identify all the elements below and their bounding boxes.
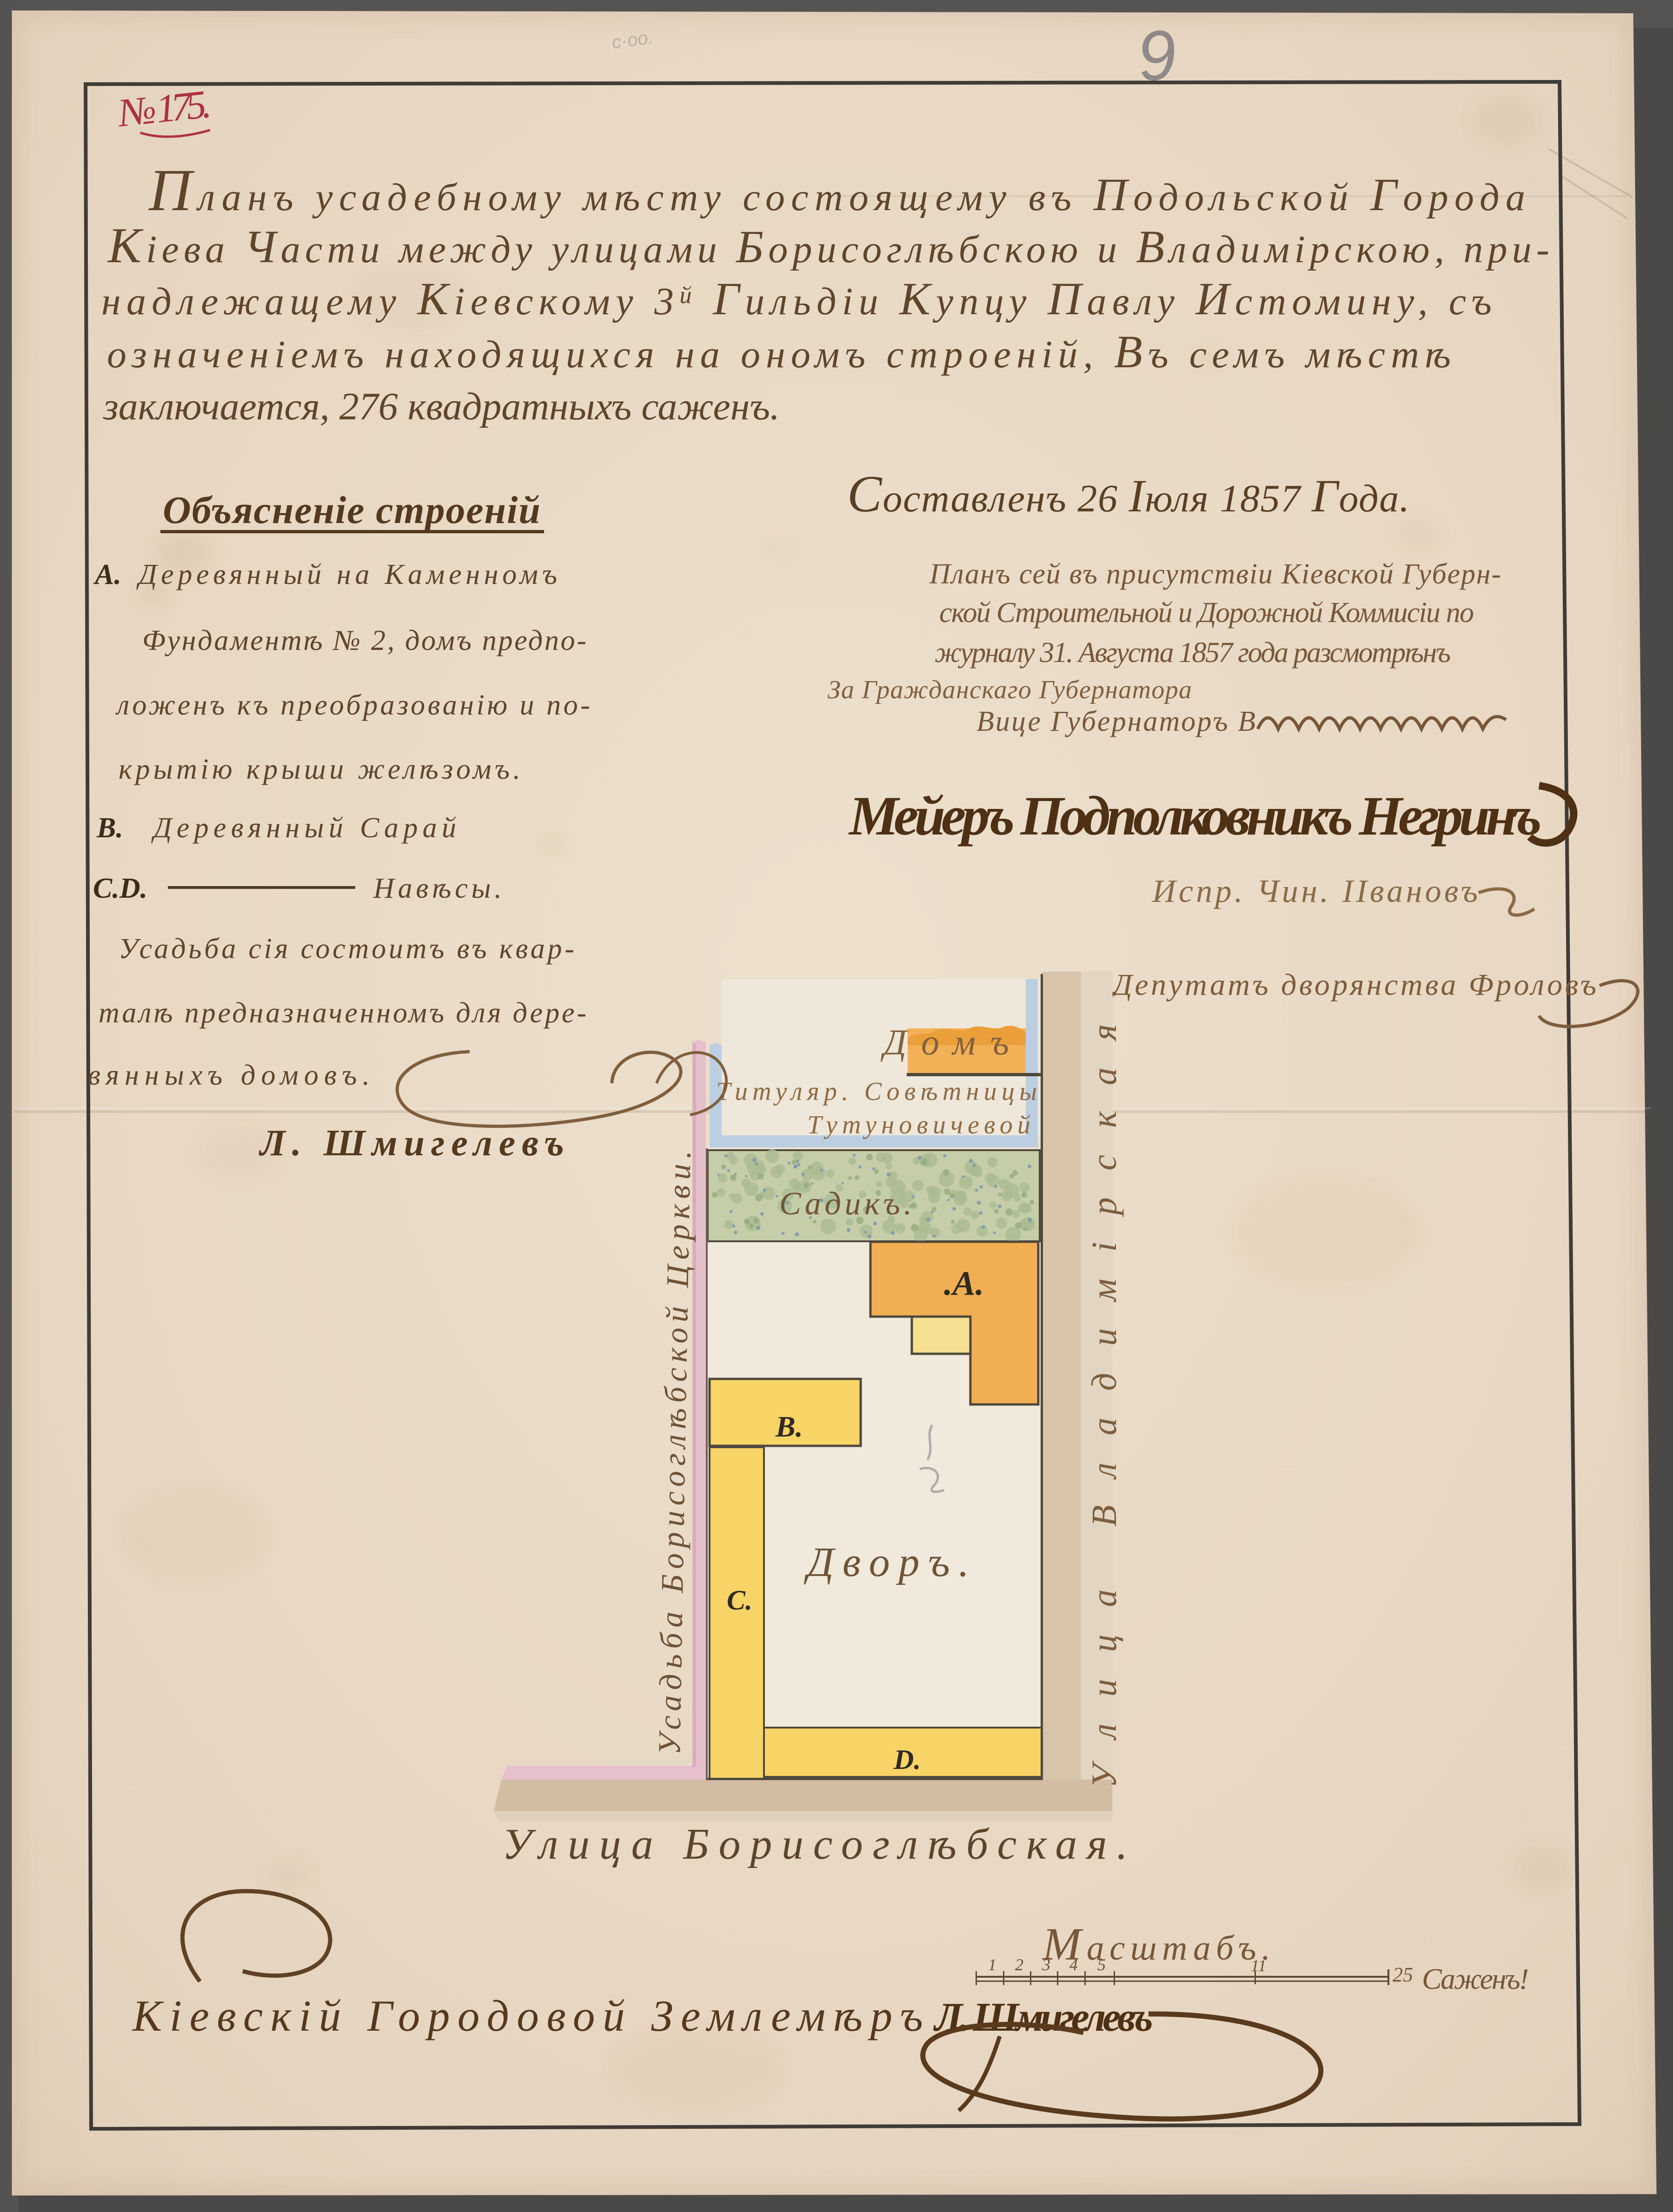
svg-text:Мейеръ Подполковникъ Негринъ: Мейеръ Подполковникъ Негринъ bbox=[848, 785, 1542, 847]
svg-text:Саженъ!: Саженъ! bbox=[1422, 1962, 1529, 1995]
svg-text:Фундаментѣ № 2, домъ предпо-: Фундаментѣ № 2, домъ предпо- bbox=[142, 625, 586, 656]
svg-text:ской Строительной и Дорожной: ской Строительной и Дорожной Коммисіи по bbox=[939, 597, 1474, 629]
svg-text:Садикъ.: Садикъ. bbox=[779, 1186, 912, 1222]
svg-text:крытію крыши желѣзомъ.: крытію крыши желѣзомъ. bbox=[119, 754, 520, 785]
svg-text:Испр. Чин. IІвановъ: Испр. Чин. IІвановъ bbox=[1152, 874, 1478, 909]
svg-text:25: 25 bbox=[1393, 1963, 1413, 1986]
svg-text:Дворъ.: Дворъ. bbox=[803, 1539, 969, 1585]
svg-text:В.: В. bbox=[96, 812, 123, 844]
svg-text:9: 9 bbox=[1134, 14, 1181, 96]
svg-text:надлежащему Кіевскому 3й Гил: надлежащему Кіевскому 3й Гильдіи Купцу П… bbox=[101, 273, 1492, 325]
svg-text:3: 3 bbox=[1042, 1955, 1050, 1974]
svg-text:заключается, 276 квадратныхъ: заключается, 276 квадратныхъ саженъ. bbox=[102, 385, 780, 428]
svg-text:1: 1 bbox=[988, 1955, 996, 1974]
svg-text:4: 4 bbox=[1069, 1955, 1078, 1974]
svg-text:11: 11 bbox=[1251, 1956, 1266, 1975]
svg-text:Вице Губернаторъ В: Вице Губернаторъ В bbox=[976, 706, 1255, 737]
svg-text:2: 2 bbox=[1015, 1955, 1023, 1974]
svg-text:Навѣсы.: Навѣсы. bbox=[373, 873, 502, 904]
svg-text:Титуляр. Совѣтницы: Титуляр. Совѣтницы bbox=[716, 1077, 1037, 1106]
svg-text:5: 5 bbox=[1097, 1955, 1106, 1974]
svg-text:За Гражданскаго Губернатора: За Гражданскаго Губернатора bbox=[828, 676, 1192, 704]
svg-text:С.: С. bbox=[727, 1585, 752, 1616]
svg-text:Кіевскій Городовой Землемѣръ: Кіевскій Городовой Землемѣръ bbox=[132, 1991, 923, 2040]
svg-text:Планъ сей въ присутствіи Кі: Планъ сей въ присутствіи Кіевской Губерн… bbox=[929, 558, 1501, 590]
svg-text:журналу 31. Августа 1857 го: журналу 31. Августа 1857 года разсмотрѣн… bbox=[935, 637, 1451, 669]
svg-text:В.: В. bbox=[775, 1410, 803, 1443]
svg-text:D.: D. bbox=[893, 1744, 921, 1775]
svg-text:C.D.: C.D. bbox=[93, 873, 147, 904]
svg-text:А.: А. bbox=[93, 559, 121, 590]
svg-text:.А.: .А. bbox=[944, 1265, 984, 1303]
svg-text:вянныхъ домовъ.: вянныхъ домовъ. bbox=[88, 1060, 370, 1091]
svg-text:Деревянный на Каменномъ: Деревянный на Каменномъ bbox=[136, 559, 557, 590]
svg-text:Л. Шмигелевъ: Л. Шмигелевъ bbox=[933, 1995, 1153, 2040]
